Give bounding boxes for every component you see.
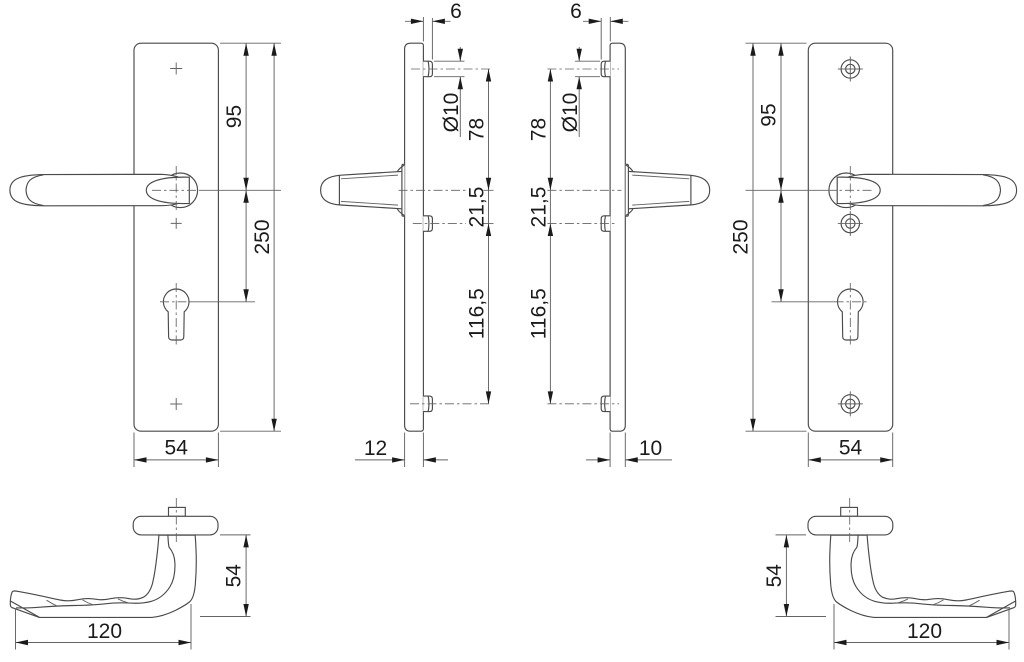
svg-text:12: 12 (364, 437, 387, 460)
svg-text:116,5: 116,5 (466, 288, 489, 339)
svg-text:21,5: 21,5 (528, 187, 551, 228)
svg-text:10: 10 (639, 437, 662, 460)
svg-text:6: 6 (570, 0, 582, 23)
svg-text:250: 250 (730, 219, 753, 254)
svg-text:78: 78 (528, 118, 551, 141)
svg-text:78: 78 (466, 118, 489, 141)
svg-text:95: 95 (223, 105, 246, 128)
svg-text:116,5: 116,5 (528, 288, 551, 339)
svg-text:120: 120 (907, 620, 942, 643)
svg-text:95: 95 (758, 103, 781, 126)
svg-text:6: 6 (450, 0, 462, 23)
svg-text:54: 54 (839, 437, 863, 460)
svg-text:21,5: 21,5 (466, 187, 489, 228)
svg-text:250: 250 (251, 219, 274, 254)
svg-text:Ø10: Ø10 (559, 93, 582, 133)
svg-text:Ø10: Ø10 (440, 93, 463, 133)
svg-text:54: 54 (165, 437, 189, 460)
svg-text:54: 54 (763, 564, 786, 588)
svg-text:54: 54 (223, 564, 246, 588)
svg-text:120: 120 (87, 620, 122, 643)
